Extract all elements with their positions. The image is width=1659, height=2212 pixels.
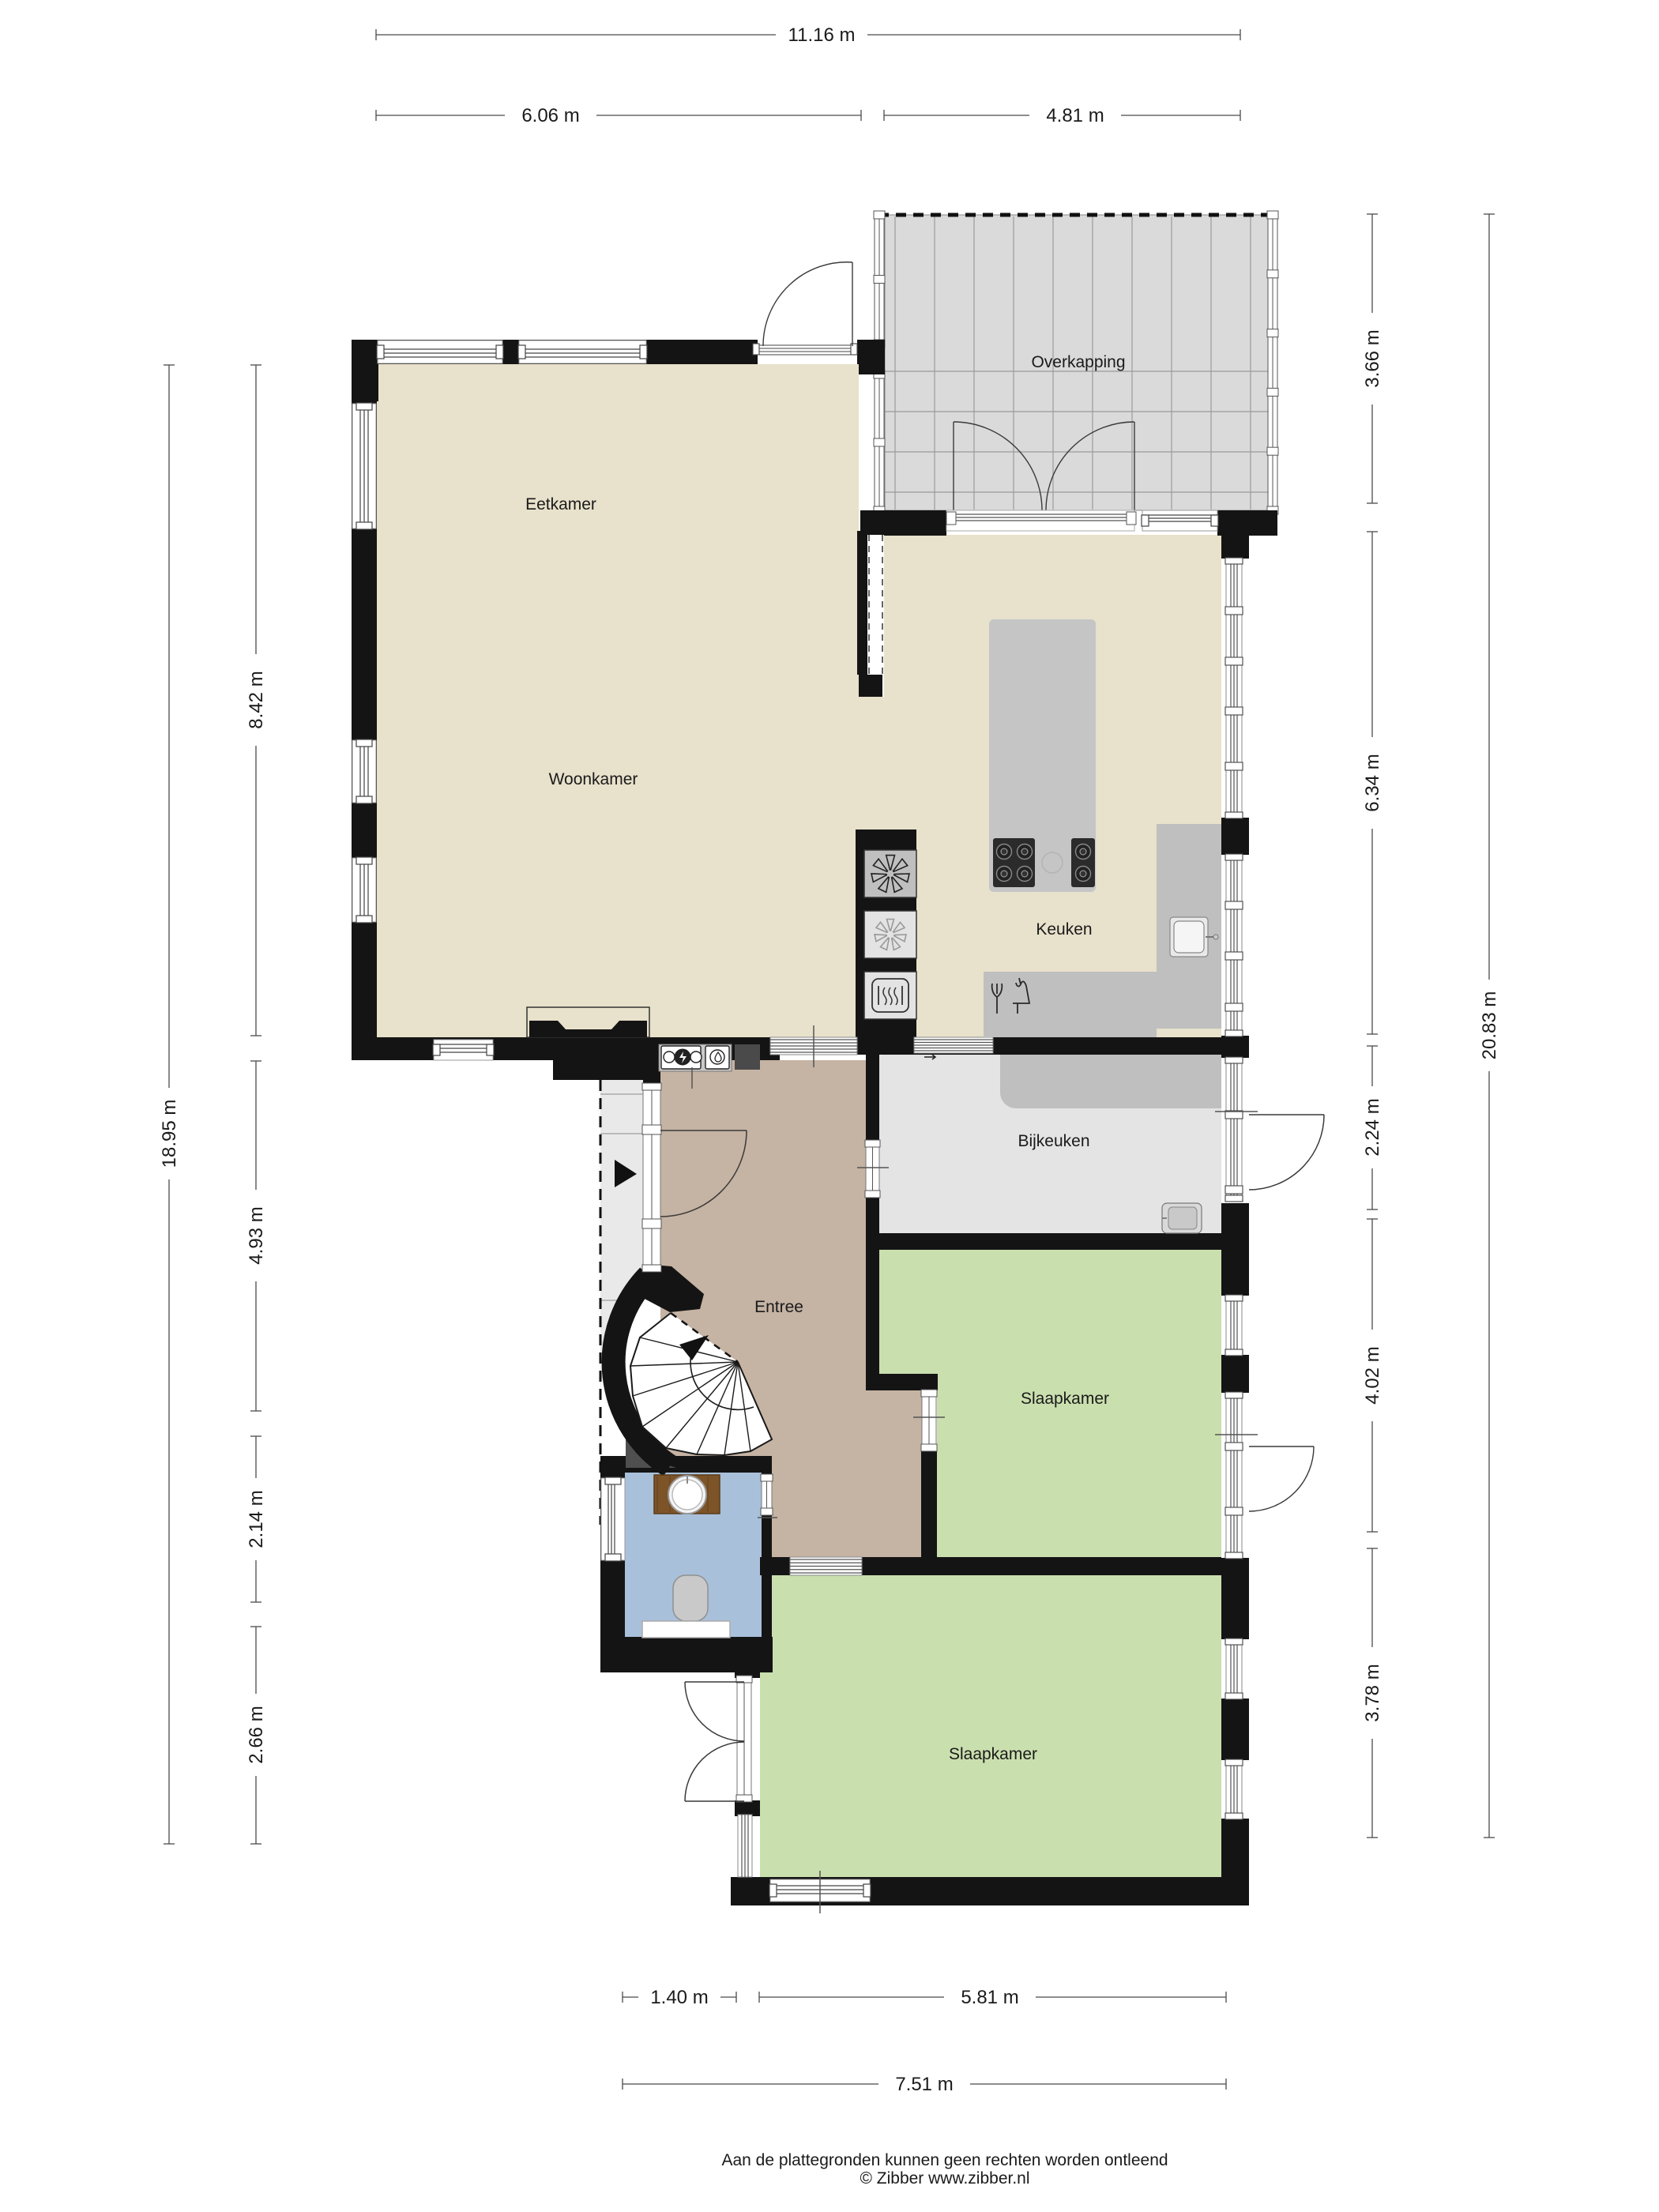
svg-text:Slaapkamer: Slaapkamer xyxy=(1021,1390,1109,1408)
svg-text:5.81 m: 5.81 m xyxy=(961,1987,1018,2008)
svg-text:Eetkamer: Eetkamer xyxy=(525,495,596,513)
svg-text:Woonkamer: Woonkamer xyxy=(549,770,638,788)
svg-text:3.78 m: 3.78 m xyxy=(1362,1664,1383,1721)
svg-text:Keuken: Keuken xyxy=(1036,920,1092,939)
svg-text:3.66 m: 3.66 m xyxy=(1362,329,1383,387)
svg-text:2.66 m: 2.66 m xyxy=(246,1706,267,1763)
svg-text:18.95 m: 18.95 m xyxy=(159,1100,180,1168)
svg-text:20.83 m: 20.83 m xyxy=(1479,991,1500,1060)
svg-text:Overkapping: Overkapping xyxy=(1031,353,1125,371)
svg-text:© Zibber www.zibber.nl: © Zibber www.zibber.nl xyxy=(860,2169,1029,2188)
svg-text:8.42 m: 8.42 m xyxy=(246,671,267,728)
svg-text:2.14 m: 2.14 m xyxy=(246,1490,267,1548)
svg-text:Slaapkamer: Slaapkamer xyxy=(949,1745,1037,1763)
svg-text:4.81 m: 4.81 m xyxy=(1046,105,1104,126)
svg-text:4.93 m: 4.93 m xyxy=(246,1206,267,1264)
svg-text:Bijkeuken: Bijkeuken xyxy=(1018,1132,1089,1150)
svg-text:4.02 m: 4.02 m xyxy=(1362,1346,1383,1404)
svg-text:11.16 m: 11.16 m xyxy=(788,24,856,46)
svg-text:1.40 m: 1.40 m xyxy=(650,1987,708,2008)
svg-text:7.51 m: 7.51 m xyxy=(895,2074,953,2095)
svg-text:Aan de plattegronden kunnen ge: Aan de plattegronden kunnen geen rechten… xyxy=(721,2151,1168,2169)
svg-text:2.24 m: 2.24 m xyxy=(1362,1098,1383,1156)
svg-text:6.34 m: 6.34 m xyxy=(1362,754,1383,811)
svg-text:Entree: Entree xyxy=(754,1298,803,1316)
svg-text:6.06 m: 6.06 m xyxy=(521,105,579,126)
